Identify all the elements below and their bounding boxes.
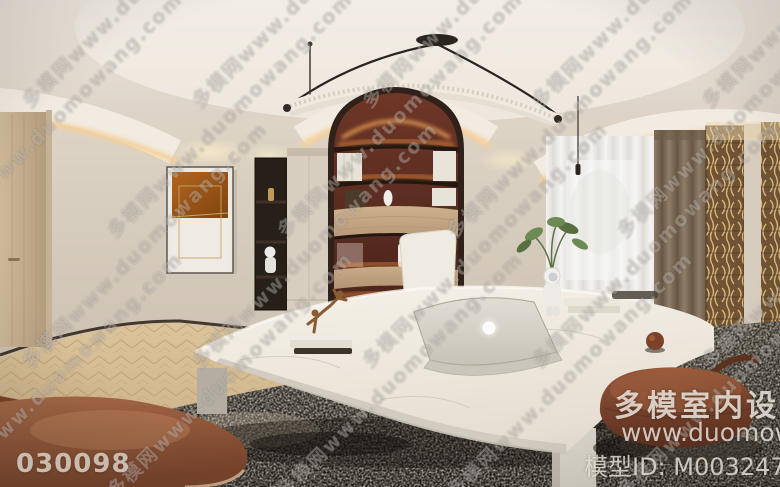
scene-id-label: 030098: [16, 449, 131, 479]
website-watermark: www.duomowang: [621, 418, 780, 447]
panorama-screenshot: 多模网www.duomowang.com多模网www.duomowang.com…: [0, 0, 780, 487]
model-id-label: 模型ID: M0032470: [584, 447, 780, 482]
